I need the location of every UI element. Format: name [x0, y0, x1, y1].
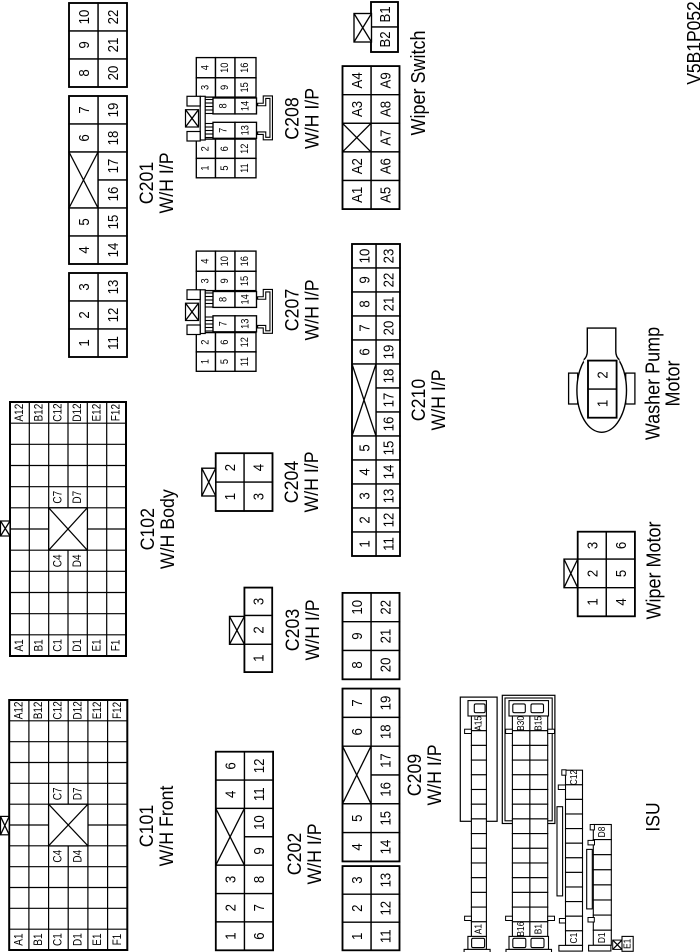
svg-text:11: 11 [104, 336, 121, 350]
svg-text:14: 14 [377, 840, 394, 855]
svg-text:6: 6 [75, 134, 92, 141]
svg-text:1: 1 [200, 359, 212, 364]
svg-text:D12: D12 [72, 701, 85, 719]
svg-text:23: 23 [380, 249, 397, 264]
svg-text:W/H Front: W/H Front [155, 785, 177, 867]
svg-text:10: 10 [219, 256, 231, 267]
svg-text:3: 3 [200, 278, 212, 283]
svg-text:11: 11 [377, 929, 394, 943]
svg-text:2: 2 [250, 626, 267, 633]
svg-text:1: 1 [584, 598, 601, 605]
svg-text:19: 19 [377, 696, 394, 711]
svg-text:20: 20 [104, 66, 121, 81]
svg-text:A1: A1 [12, 933, 25, 945]
svg-text:15: 15 [240, 82, 252, 93]
svg-text:C4: C4 [52, 554, 65, 567]
svg-text:13: 13 [240, 318, 252, 329]
svg-text:13: 13 [377, 873, 394, 888]
svg-text:16: 16 [377, 782, 394, 797]
svg-text:7: 7 [218, 321, 230, 326]
svg-text:9: 9 [219, 278, 231, 283]
svg-text:13: 13 [240, 125, 252, 136]
svg-text:3: 3 [75, 283, 92, 290]
svg-text:20: 20 [380, 321, 397, 336]
svg-text:20: 20 [377, 657, 394, 672]
svg-text:C203: C203 [281, 609, 303, 651]
svg-text:12: 12 [250, 758, 267, 773]
svg-text:15: 15 [104, 215, 121, 230]
svg-text:3: 3 [200, 85, 212, 90]
svg-text:21: 21 [380, 297, 397, 312]
svg-text:3: 3 [222, 876, 239, 883]
svg-text:2: 2 [200, 339, 212, 344]
svg-text:C12: C12 [568, 770, 580, 785]
svg-text:4: 4 [200, 258, 212, 263]
svg-text:A5: A5 [377, 187, 394, 203]
svg-text:6: 6 [219, 146, 231, 151]
svg-text:3: 3 [356, 492, 373, 499]
svg-text:3: 3 [584, 542, 601, 549]
svg-text:C1: C1 [52, 933, 65, 946]
svg-text:15: 15 [380, 441, 397, 456]
svg-text:C7: C7 [52, 787, 65, 800]
svg-text:C12: C12 [52, 403, 65, 421]
svg-text:6: 6 [250, 932, 267, 939]
svg-text:ISU: ISU [642, 802, 664, 831]
svg-text:A7: A7 [377, 129, 394, 145]
svg-text:11: 11 [250, 787, 267, 801]
svg-text:B12: B12 [32, 702, 45, 720]
svg-text:7: 7 [250, 904, 267, 911]
svg-text:17: 17 [377, 753, 394, 768]
svg-text:6: 6 [219, 339, 231, 344]
svg-text:3: 3 [250, 598, 267, 605]
svg-text:1: 1 [200, 165, 212, 170]
svg-text:C208: C208 [281, 97, 303, 139]
svg-text:C207: C207 [281, 289, 303, 331]
svg-text:E1: E1 [622, 939, 634, 949]
svg-text:W/H Body: W/H Body [156, 489, 178, 569]
svg-text:C1: C1 [52, 639, 65, 652]
svg-text:8: 8 [356, 300, 373, 307]
svg-text:10: 10 [219, 62, 231, 73]
svg-text:W/H I/P: W/H I/P [155, 152, 177, 213]
svg-text:15: 15 [240, 276, 252, 287]
svg-text:F1: F1 [111, 934, 124, 946]
svg-text:19: 19 [104, 103, 121, 118]
svg-text:B1: B1 [32, 639, 45, 651]
svg-text:C202: C202 [283, 833, 305, 875]
svg-text:5: 5 [348, 814, 365, 821]
svg-text:10: 10 [75, 10, 92, 25]
svg-text:11: 11 [380, 537, 397, 551]
svg-text:10: 10 [356, 249, 373, 264]
svg-text:Wiper Motor: Wiper Motor [644, 521, 666, 620]
svg-text:B1: B1 [32, 933, 45, 945]
svg-text:7: 7 [356, 324, 373, 331]
svg-text:6: 6 [612, 542, 629, 549]
svg-text:2: 2 [221, 464, 238, 471]
svg-text:Washer Pump: Washer Pump [642, 327, 664, 440]
svg-text:2: 2 [594, 371, 611, 378]
svg-text:10: 10 [250, 815, 267, 830]
svg-text:5: 5 [219, 165, 231, 170]
svg-text:C204: C204 [280, 461, 302, 503]
svg-text:A1: A1 [13, 639, 26, 651]
svg-text:F1: F1 [110, 640, 123, 652]
svg-text:1: 1 [75, 339, 92, 346]
svg-text:13: 13 [104, 280, 121, 295]
svg-text:1: 1 [221, 493, 238, 500]
svg-text:W/H I/P: W/H I/P [301, 88, 323, 149]
svg-text:8: 8 [75, 69, 92, 76]
svg-text:3: 3 [348, 876, 365, 883]
svg-text:12: 12 [104, 308, 121, 323]
svg-text:18: 18 [104, 131, 121, 146]
svg-text:E12: E12 [91, 702, 104, 720]
svg-text:B2: B2 [376, 31, 393, 47]
svg-text:4: 4 [356, 468, 373, 475]
svg-text:9: 9 [356, 276, 373, 283]
svg-text:16: 16 [240, 256, 252, 267]
svg-text:E1: E1 [90, 639, 103, 651]
svg-text:C102: C102 [136, 508, 158, 550]
svg-text:C1: C1 [568, 933, 580, 944]
svg-text:8: 8 [348, 661, 365, 668]
svg-text:E12: E12 [90, 404, 103, 422]
svg-text:B16: B16 [515, 922, 527, 937]
svg-text:8: 8 [218, 297, 230, 302]
svg-text:21: 21 [104, 38, 121, 53]
svg-text:1: 1 [594, 400, 611, 407]
svg-text:D4: D4 [72, 850, 85, 863]
svg-text:18: 18 [380, 369, 397, 384]
svg-text:A8: A8 [377, 101, 394, 117]
svg-text:D1: D1 [71, 639, 84, 652]
svg-text:5: 5 [219, 359, 231, 364]
svg-text:V5B1P052: V5B1P052 [683, 1, 700, 85]
svg-text:B1: B1 [376, 6, 393, 22]
svg-text:22: 22 [104, 10, 121, 25]
svg-text:2: 2 [75, 311, 92, 318]
svg-text:16: 16 [380, 417, 397, 432]
svg-text:8: 8 [218, 103, 230, 108]
svg-text:A12: A12 [12, 702, 25, 720]
svg-text:Wiper Switch: Wiper Switch [408, 31, 430, 136]
svg-text:W/H I/P: W/H I/P [301, 599, 323, 660]
svg-text:4: 4 [612, 598, 629, 605]
svg-text:D4: D4 [71, 554, 84, 567]
svg-text:1: 1 [356, 540, 373, 547]
svg-text:5: 5 [612, 570, 629, 577]
svg-text:17: 17 [104, 159, 121, 174]
svg-text:B30: B30 [515, 716, 527, 731]
svg-text:W/H I/P: W/H I/P [427, 369, 449, 430]
svg-text:10: 10 [348, 600, 365, 615]
svg-text:F12: F12 [110, 404, 123, 421]
svg-text:7: 7 [75, 106, 92, 113]
svg-text:W/H I/P: W/H I/P [303, 823, 325, 884]
svg-text:14: 14 [380, 465, 397, 480]
svg-text:12: 12 [240, 143, 252, 154]
svg-text:7: 7 [218, 127, 230, 132]
svg-text:3: 3 [250, 493, 267, 500]
svg-text:4: 4 [348, 843, 365, 850]
svg-text:D1: D1 [596, 932, 608, 943]
svg-text:1: 1 [250, 654, 267, 661]
svg-text:C12: C12 [52, 701, 65, 719]
svg-text:C7: C7 [52, 491, 65, 504]
svg-text:4: 4 [200, 65, 212, 70]
svg-text:C210: C210 [407, 379, 429, 421]
svg-text:2: 2 [584, 570, 601, 577]
svg-text:F12: F12 [111, 702, 124, 719]
svg-text:2: 2 [356, 516, 373, 523]
svg-text:D12: D12 [71, 403, 84, 421]
svg-text:E1: E1 [91, 933, 104, 945]
svg-text:9: 9 [348, 632, 365, 639]
svg-text:D8: D8 [596, 827, 608, 838]
svg-text:9: 9 [250, 847, 267, 854]
svg-text:2: 2 [222, 904, 239, 911]
svg-text:W/H I/P: W/H I/P [301, 279, 323, 340]
svg-text:D7: D7 [72, 787, 85, 800]
svg-text:13: 13 [380, 489, 397, 504]
svg-text:A2: A2 [348, 158, 365, 174]
svg-text:16: 16 [104, 187, 121, 202]
svg-text:14: 14 [240, 294, 252, 305]
svg-text:9: 9 [219, 85, 231, 90]
svg-text:A15: A15 [473, 716, 485, 731]
svg-text:9: 9 [75, 41, 92, 48]
svg-text:W/H I/P: W/H I/P [423, 744, 445, 805]
svg-text:14: 14 [240, 101, 252, 112]
svg-text:A9: A9 [377, 72, 394, 88]
svg-text:2: 2 [200, 146, 212, 151]
svg-text:C209: C209 [403, 754, 425, 796]
svg-text:1: 1 [222, 932, 239, 939]
svg-text:A12: A12 [13, 404, 26, 422]
svg-text:18: 18 [377, 724, 394, 739]
svg-text:12: 12 [240, 337, 252, 348]
svg-text:5: 5 [75, 218, 92, 225]
svg-text:8: 8 [250, 876, 267, 883]
svg-text:C101: C101 [135, 805, 157, 847]
svg-text:C201: C201 [135, 162, 157, 204]
svg-text:C4: C4 [52, 850, 65, 863]
svg-text:19: 19 [380, 345, 397, 360]
svg-text:6: 6 [348, 728, 365, 735]
svg-text:W/H I/P: W/H I/P [300, 451, 322, 512]
svg-text:7: 7 [348, 699, 365, 706]
svg-text:22: 22 [377, 600, 394, 615]
svg-text:4: 4 [222, 790, 239, 797]
svg-text:11: 11 [240, 356, 252, 366]
svg-text:1: 1 [348, 932, 365, 939]
svg-text:16: 16 [240, 62, 252, 73]
svg-text:B12: B12 [32, 404, 45, 422]
svg-text:4: 4 [250, 464, 267, 471]
svg-text:A3: A3 [348, 101, 365, 117]
svg-text:12: 12 [377, 901, 394, 916]
svg-text:17: 17 [380, 393, 397, 408]
svg-text:D7: D7 [71, 491, 84, 504]
svg-text:6: 6 [222, 762, 239, 769]
svg-text:5: 5 [356, 444, 373, 451]
svg-text:22: 22 [380, 273, 397, 288]
svg-text:15: 15 [377, 811, 394, 826]
svg-text:11: 11 [240, 163, 252, 173]
svg-text:B15: B15 [533, 716, 545, 731]
svg-text:2: 2 [348, 904, 365, 911]
svg-text:B1: B1 [533, 924, 545, 934]
svg-text:A6: A6 [377, 158, 394, 174]
svg-text:D1: D1 [72, 933, 85, 946]
svg-text:A1: A1 [473, 924, 485, 934]
svg-text:6: 6 [356, 348, 373, 355]
svg-text:Motor: Motor [662, 360, 684, 407]
svg-text:4: 4 [75, 246, 92, 253]
svg-text:A4: A4 [348, 72, 365, 88]
svg-text:12: 12 [380, 513, 397, 528]
svg-text:21: 21 [377, 629, 394, 644]
svg-text:A1: A1 [348, 187, 365, 203]
svg-text:14: 14 [104, 243, 121, 258]
